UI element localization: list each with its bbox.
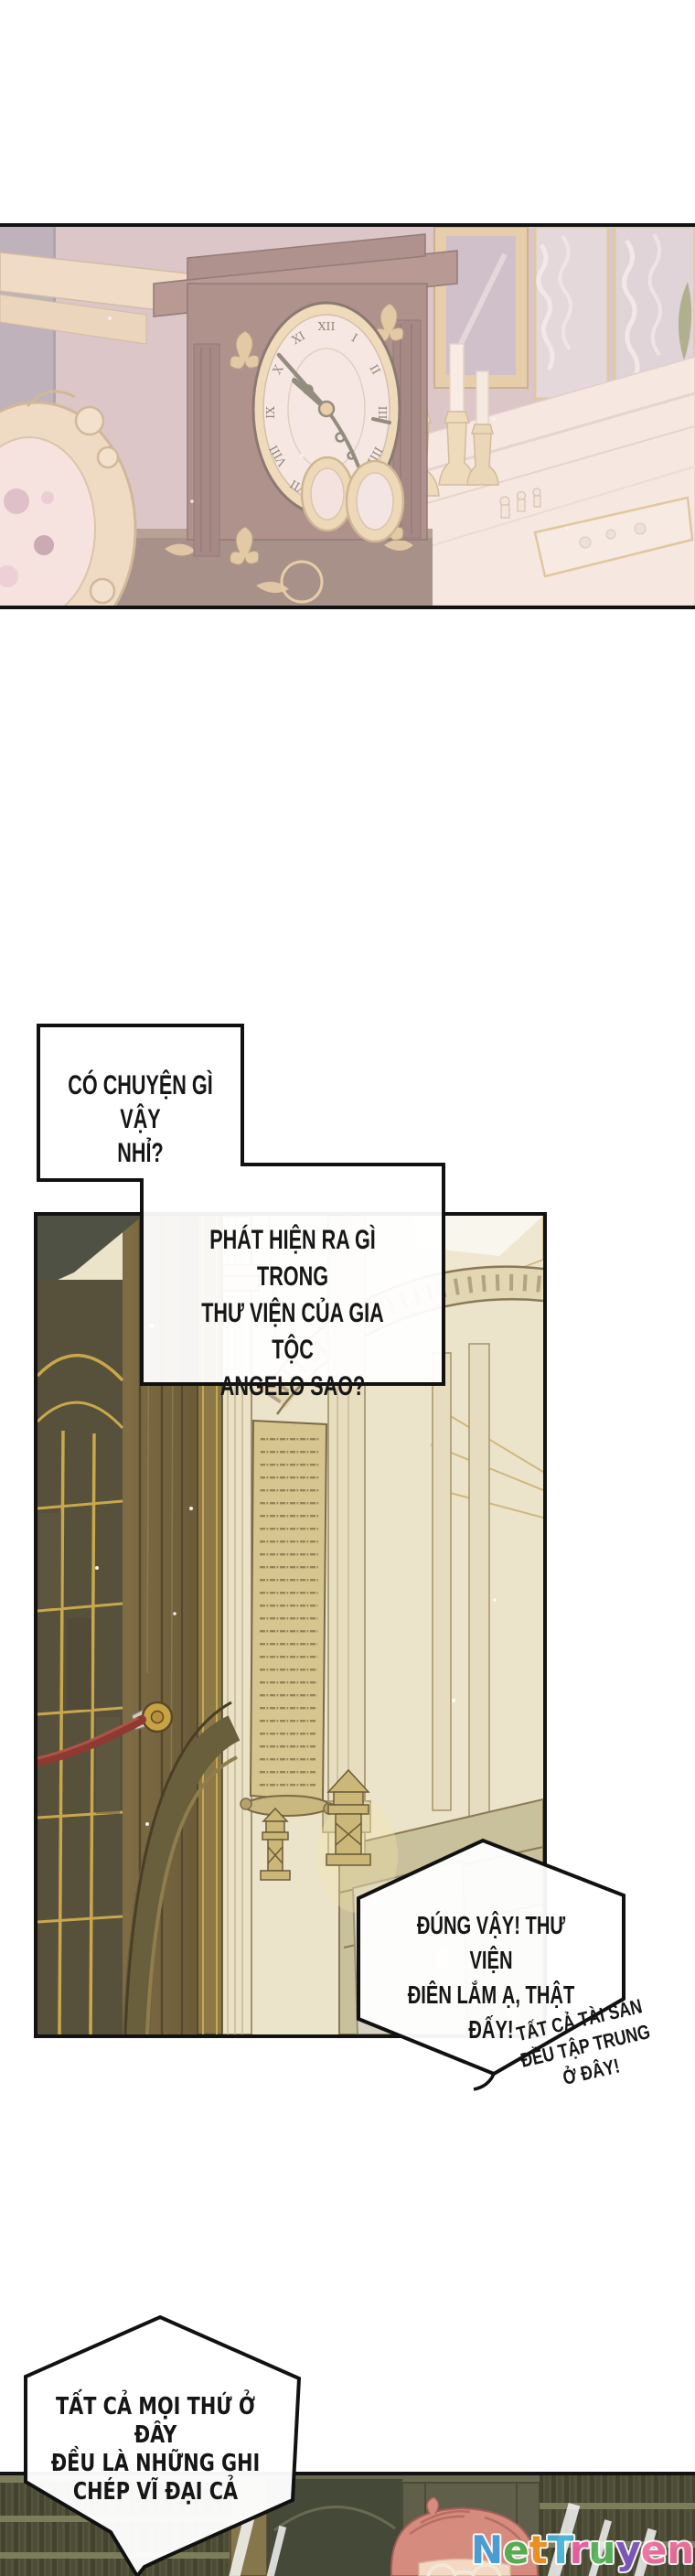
- speech-text-2: PHÁT HIỆN RA GÌ TRONG THƯ VIỆN CỦA GIA T…: [142, 1222, 444, 1405]
- speech-line: ĐỀU LÀ NHỮNG GHI: [46, 2450, 265, 2478]
- speech-line: THƯ VIỆN CỦA GIA TỘC: [184, 1295, 401, 1368]
- watermark-letter: e: [641, 2528, 668, 2572]
- watermark-letter: u: [589, 2528, 616, 2572]
- speech-text-1: CÓ CHUYỆN GÌ VẬY NHỈ?: [38, 1068, 242, 1170]
- speech-line: CÓ CHUYỆN GÌ VẬY: [67, 1068, 214, 1136]
- watermark-letter: n: [667, 2528, 694, 2572]
- speech-line: NHỈ?: [67, 1136, 214, 1170]
- clock-scene-illustration: XIIIIIIIIIIIIVVIVIIVIIIIXXXI: [0, 227, 695, 606]
- speech-line: ANGELO SAO?: [184, 1368, 401, 1405]
- speech-line: CHÉP VĨ ĐẠI CẢ: [46, 2478, 265, 2506]
- speech-bubble-3-tail: [474, 2074, 494, 2089]
- panel-clock-scene: XIIIIIIIIIIIIVVIVIIVIIIIXXXI: [0, 223, 695, 609]
- pink-wash: [0, 227, 695, 606]
- watermark-letter: t: [529, 2528, 548, 2572]
- speech-text-4: TẤT CẢ MỌI THỨ Ở ĐÂY ĐỀU LÀ NHỮNG GHI CH…: [18, 2393, 293, 2506]
- hanging-scroll: [241, 1421, 335, 1816]
- watermark-letter: T: [548, 2528, 570, 2572]
- comic-page: XIIIIIIIIIIIIVVIVIIVIIIIXXXI: [0, 0, 695, 2576]
- watermark-letter: e: [503, 2528, 529, 2572]
- watermark-letter: N: [471, 2528, 503, 2572]
- watermark-letter: y: [615, 2528, 640, 2572]
- watermark-letter: r: [570, 2528, 589, 2572]
- speech-line: ĐÚNG VẬY! THƯ VIỆN: [396, 1908, 587, 1978]
- speech-line: TẤT CẢ MỌI THỨ Ở ĐÂY: [46, 2393, 265, 2450]
- site-watermark: NetTruyen: [471, 2528, 694, 2572]
- speech-line: PHÁT HIỆN RA GÌ TRONG: [184, 1222, 401, 1295]
